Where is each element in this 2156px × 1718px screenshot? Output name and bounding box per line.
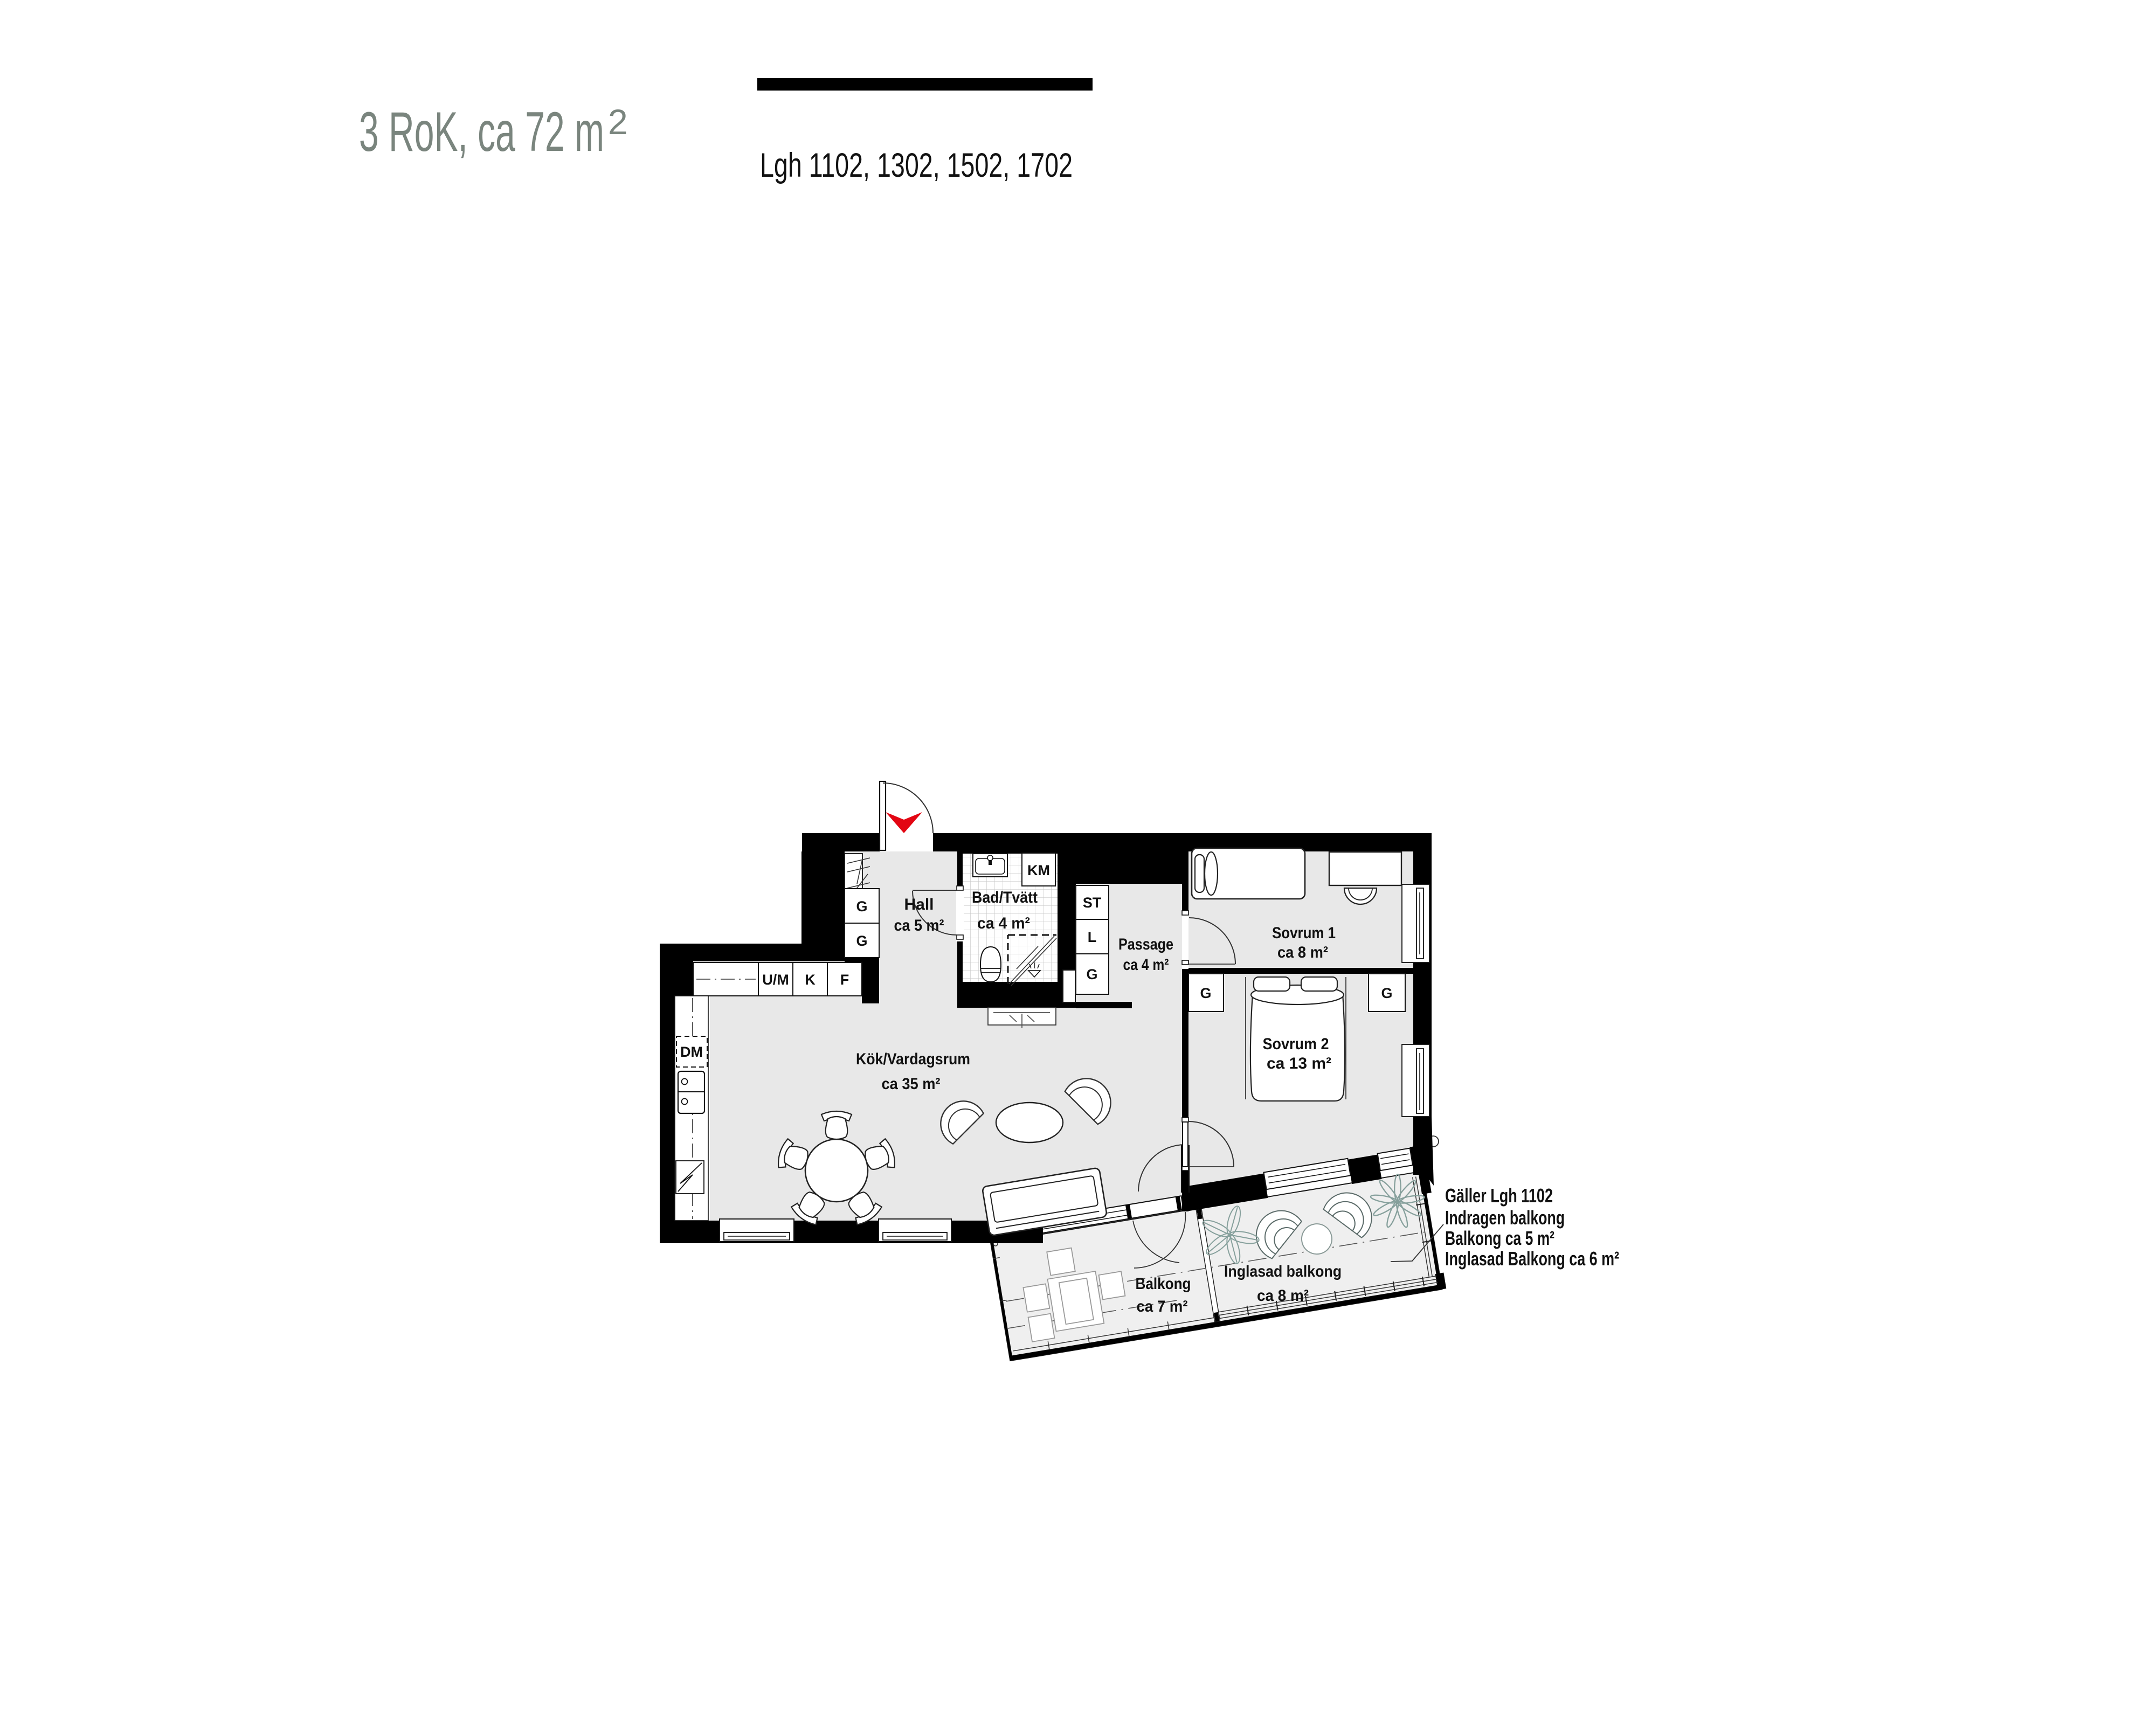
svg-text:Passage: Passage: [1118, 936, 1173, 953]
svg-text:ca 8 m²: ca 8 m²: [1257, 1287, 1309, 1305]
svg-text:ca 5 m²: ca 5 m²: [894, 917, 944, 934]
svg-text:Hall: Hall: [904, 896, 934, 913]
svg-text:2: 2: [608, 102, 628, 142]
svg-text:ca 8 m²: ca 8 m²: [1277, 944, 1328, 961]
svg-text:Inglasad balkong: Inglasad balkong: [1224, 1263, 1342, 1280]
svg-text:ST: ST: [1083, 895, 1102, 911]
svg-text:G: G: [856, 898, 867, 915]
svg-text:Bad/Tvätt: Bad/Tvätt: [972, 889, 1038, 906]
svg-text:ca 4 m²: ca 4 m²: [977, 915, 1030, 932]
svg-text:Kök/Vardagsrum: Kök/Vardagsrum: [856, 1050, 970, 1068]
svg-text:Indragen balkong: Indragen balkong: [1445, 1207, 1565, 1229]
svg-text:ca 13 m²: ca 13 m²: [1267, 1055, 1331, 1072]
svg-text:Balkong: Balkong: [1136, 1275, 1191, 1293]
svg-text:KM: KM: [1027, 862, 1050, 878]
svg-text:ca 7 m²: ca 7 m²: [1137, 1298, 1188, 1315]
svg-text:F: F: [840, 972, 849, 988]
svg-text:G: G: [1200, 985, 1211, 1001]
svg-text:ca 4 m²: ca 4 m²: [1123, 956, 1169, 974]
svg-text:U/M: U/M: [762, 972, 789, 988]
svg-text:Inglasad Balkong ca 6 m²: Inglasad Balkong ca 6 m²: [1445, 1248, 1619, 1270]
svg-text:G: G: [1086, 966, 1097, 982]
svg-text:Sovrum 2: Sovrum 2: [1263, 1035, 1329, 1053]
svg-text:Lgh 1102, 1302, 1502, 1702: Lgh 1102, 1302, 1502, 1702: [760, 147, 1073, 184]
svg-text:G: G: [856, 933, 867, 949]
svg-text:ca 35 m²: ca 35 m²: [882, 1075, 941, 1093]
svg-text:DM: DM: [680, 1044, 703, 1060]
svg-text:L: L: [1088, 929, 1097, 945]
svg-text:3 RoK, ca 72 m: 3 RoK, ca 72 m: [359, 101, 604, 163]
svg-text:K: K: [805, 972, 816, 988]
svg-text:Balkong ca 5 m²: Balkong ca 5 m²: [1445, 1227, 1554, 1249]
svg-text:Sovrum 1: Sovrum 1: [1272, 924, 1336, 942]
svg-text:Gäller Lgh 1102: Gäller Lgh 1102: [1445, 1184, 1553, 1207]
svg-text:G: G: [1381, 985, 1392, 1001]
